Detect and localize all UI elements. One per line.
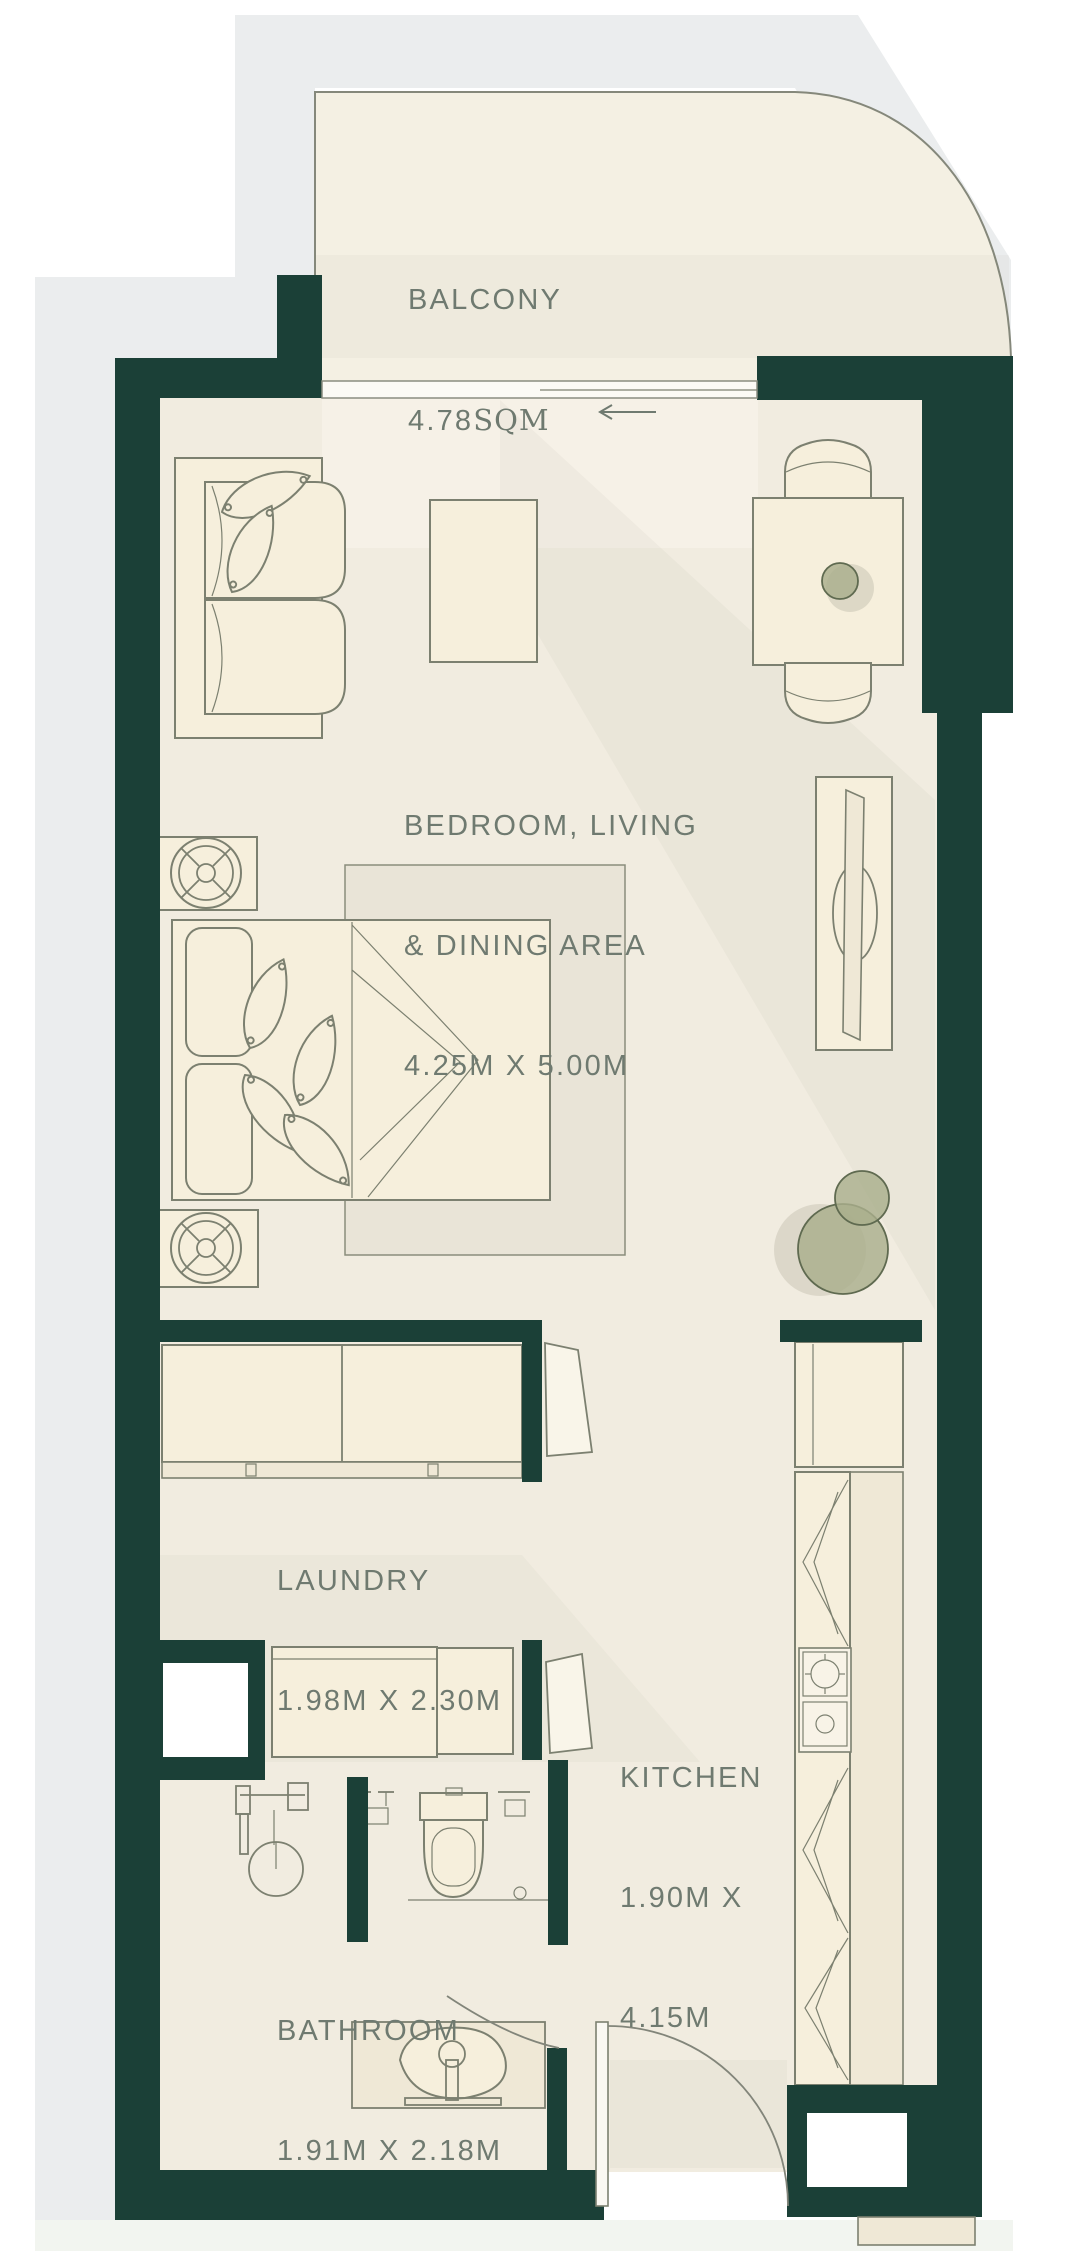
balcony-name: BALCONY bbox=[408, 280, 562, 320]
wall-closet-pillar bbox=[522, 1640, 542, 1760]
hob bbox=[799, 1648, 851, 1752]
wall-top-left bbox=[115, 358, 277, 398]
kitchen-countertop bbox=[850, 1472, 903, 2085]
kitchen-name: KITCHEN bbox=[620, 1758, 763, 1798]
coffee-table bbox=[430, 500, 537, 662]
bedroom-name-line2: & DINING AREA bbox=[404, 926, 698, 966]
sofa-seat-bottom bbox=[205, 600, 345, 714]
floor-plan: BALCONY 4.78SQM BEDROOM, LIVING & DINING… bbox=[0, 0, 1065, 2251]
washer-dryer-plinth bbox=[162, 1462, 522, 1478]
balcony-area: 4.78SQM bbox=[408, 400, 562, 441]
threshold-bottom-right bbox=[858, 2217, 975, 2245]
background-shade-left-strip bbox=[35, 360, 115, 2220]
bathroom-label: BATHROOM 1.91M X 2.18M bbox=[277, 1931, 502, 2251]
balcony-area-value: 4.78 bbox=[408, 405, 473, 437]
dining-chair-bottom bbox=[785, 663, 871, 723]
bedroom-name-line1: BEDROOM, LIVING bbox=[404, 806, 698, 846]
wall-bath-entry-pillar bbox=[547, 2048, 567, 2170]
laundry-dims: 1.98M X 2.30M bbox=[277, 1681, 502, 1721]
entrance-door-leaf bbox=[596, 2022, 608, 2206]
duct-shaft-opening bbox=[163, 1663, 248, 1757]
wall-laundry-door-pillar bbox=[522, 1320, 542, 1482]
balcony-area-unit: SQM bbox=[473, 403, 549, 437]
dining-chair-top bbox=[785, 440, 871, 500]
bed-pillow-top bbox=[186, 928, 252, 1056]
bedroom-dims: 4.25M X 5.00M bbox=[404, 1046, 698, 1086]
fridge bbox=[795, 1342, 903, 1467]
kitchen-dims-line1: 1.90M X bbox=[620, 1878, 763, 1918]
wall-laundry-top bbox=[160, 1320, 522, 1342]
bedroom-label: BEDROOM, LIVING & DINING AREA 4.25M X 5.… bbox=[404, 726, 698, 1166]
wall-right-lower bbox=[937, 713, 982, 2120]
wall-left bbox=[115, 358, 160, 2220]
bathroom-name: BATHROOM bbox=[277, 2011, 502, 2051]
wall-balcony-jamb bbox=[277, 275, 322, 398]
background-shade-topleft bbox=[35, 277, 315, 360]
balcony-label: BALCONY 4.78SQM bbox=[408, 200, 562, 521]
kitchen-dims-line2: 4.15M bbox=[620, 1998, 763, 2038]
dining-centerpiece bbox=[822, 563, 858, 599]
bathroom-dims: 1.91M X 2.18M bbox=[277, 2131, 502, 2171]
kitchen-label: KITCHEN 1.90M X 4.15M bbox=[620, 1678, 763, 2118]
wall-bathroom-right bbox=[548, 1760, 568, 1945]
plant-small bbox=[835, 1171, 889, 1225]
laundry-label: LAUNDRY 1.98M X 2.30M bbox=[277, 1481, 502, 1801]
nightstand-top-decor bbox=[171, 838, 241, 908]
nightstand-bottom-decor bbox=[171, 1213, 241, 1283]
wall-shower-partition bbox=[347, 1777, 368, 1942]
laundry-name: LAUNDRY bbox=[277, 1561, 502, 1601]
wall-kitchen-top bbox=[780, 1320, 922, 1342]
wall-right-upper bbox=[922, 356, 1013, 713]
duct-opening-bottom-right bbox=[807, 2113, 907, 2187]
tv-screen bbox=[843, 790, 864, 1040]
